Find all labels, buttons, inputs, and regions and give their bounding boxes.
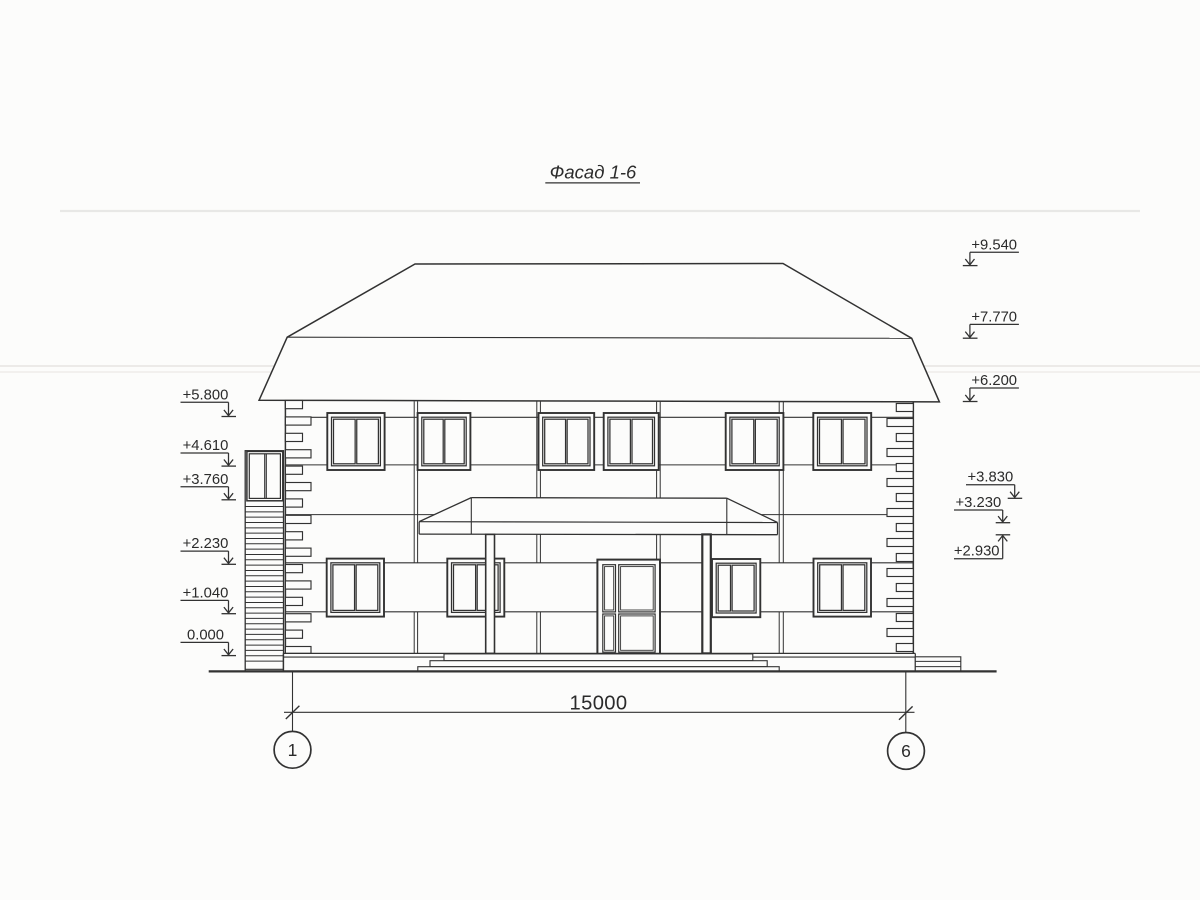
svg-text:+7.770: +7.770	[971, 309, 1017, 325]
svg-text:+2.230: +2.230	[183, 536, 229, 552]
svg-text:+3.760: +3.760	[183, 472, 229, 488]
svg-text:+9.540: +9.540	[971, 237, 1017, 253]
svg-text:+3.230: +3.230	[956, 495, 1002, 511]
svg-text:+3.830: +3.830	[968, 470, 1014, 486]
svg-text:+1.040: +1.040	[183, 585, 229, 601]
svg-text:+4.610: +4.610	[183, 438, 229, 454]
svg-text:0.000: 0.000	[187, 627, 224, 643]
svg-text:6: 6	[901, 741, 911, 761]
svg-text:+2.930: +2.930	[954, 544, 1000, 560]
svg-text:+5.800: +5.800	[183, 387, 229, 403]
svg-text:Фасад 1-6: Фасад 1-6	[550, 162, 637, 183]
svg-text:15000: 15000	[570, 693, 628, 715]
svg-text:1: 1	[288, 740, 298, 760]
svg-text:+6.200: +6.200	[971, 373, 1017, 389]
